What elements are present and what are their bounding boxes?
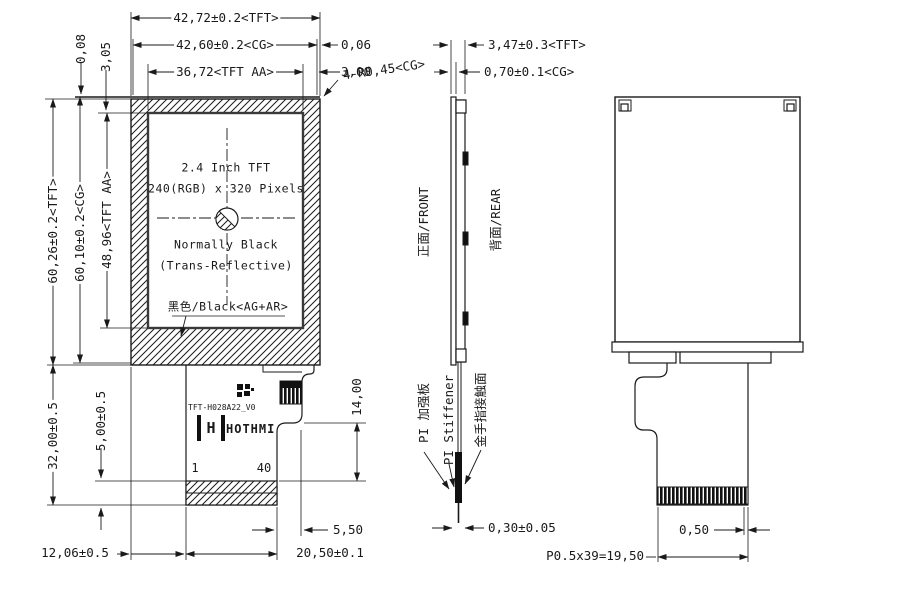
panel-resolution-text: 240(RGB) x 320 Pixels bbox=[148, 183, 304, 195]
dim-gold-height: 5,00±0.5 bbox=[95, 391, 108, 451]
dim-width-tft: 42,72±0.2<TFT> bbox=[171, 12, 280, 25]
dim-height-cg: 60,10±0.2<CG> bbox=[74, 182, 87, 284]
logo-monogram: H bbox=[206, 419, 215, 437]
pin-40-label: 40 bbox=[257, 462, 271, 474]
side-front-face-label: 正面/FRONT bbox=[418, 187, 431, 257]
tft-outline-drawing: 42,72±0.2<TFT> 42,60±0.2<CG> 36,72<TFT A… bbox=[0, 0, 924, 603]
panel-mode-text: Normally Black bbox=[174, 239, 278, 251]
side-rear-face-label: 背面/REAR bbox=[490, 189, 503, 252]
dim-width-aa: 36,72<TFT AA> bbox=[174, 66, 276, 79]
pin-1-label: 1 bbox=[191, 462, 198, 474]
dim-height-tft: 60,26±0.2<TFT> bbox=[47, 176, 60, 285]
panel-type-text: (Trans-Reflective) bbox=[159, 260, 293, 272]
dim-top-offset: 0,08 bbox=[75, 34, 88, 64]
panel-size-text: 2.4 Inch TFT bbox=[181, 162, 270, 174]
dim-thickness-cg: 0,70±0.1<CG> bbox=[484, 66, 574, 79]
brand-text: HOTHMI bbox=[226, 423, 275, 435]
dim-height-aa: 48,96<TFT AA> bbox=[101, 169, 114, 271]
dim-fpc-width: 20,50±0.1 bbox=[296, 547, 364, 560]
dim-fpc-step: 14,00 bbox=[351, 378, 364, 416]
fpc-model-text: TFT-H028A22_V0 bbox=[188, 404, 255, 412]
hothmi-logo-icon: H bbox=[197, 415, 225, 441]
dim-fpc-length: 32,00±0.5 bbox=[47, 400, 60, 472]
dim-edge-gap: 0,06 bbox=[341, 39, 371, 52]
dim-finger-pitch: P0.5x39=19,50 bbox=[546, 550, 644, 563]
gold-contact-label: 金手指接触面 bbox=[475, 372, 488, 447]
drawing-linework bbox=[0, 0, 924, 603]
dim-top-margin: 3,05 bbox=[100, 42, 113, 72]
dim-bottom-offset: 12,06±0.5 bbox=[41, 547, 109, 560]
dim-thickness-tft: 3,47±0.3<TFT> bbox=[488, 39, 586, 52]
dim-fpc-notch: 5,50 bbox=[333, 524, 363, 537]
dim-finger-width: 0,50 bbox=[679, 524, 709, 537]
panel-surface-label: 黑色/Black<AG+AR> bbox=[168, 301, 289, 313]
pi-stiffener-cn-label: PI 加强板 bbox=[418, 383, 431, 443]
dim-width-cg: 42,60±0.2<CG> bbox=[174, 39, 276, 52]
dim-stiffener-thickness: 0,30±0.05 bbox=[488, 522, 556, 535]
pi-stiffener-en-label: PI Stiffener bbox=[443, 375, 456, 465]
